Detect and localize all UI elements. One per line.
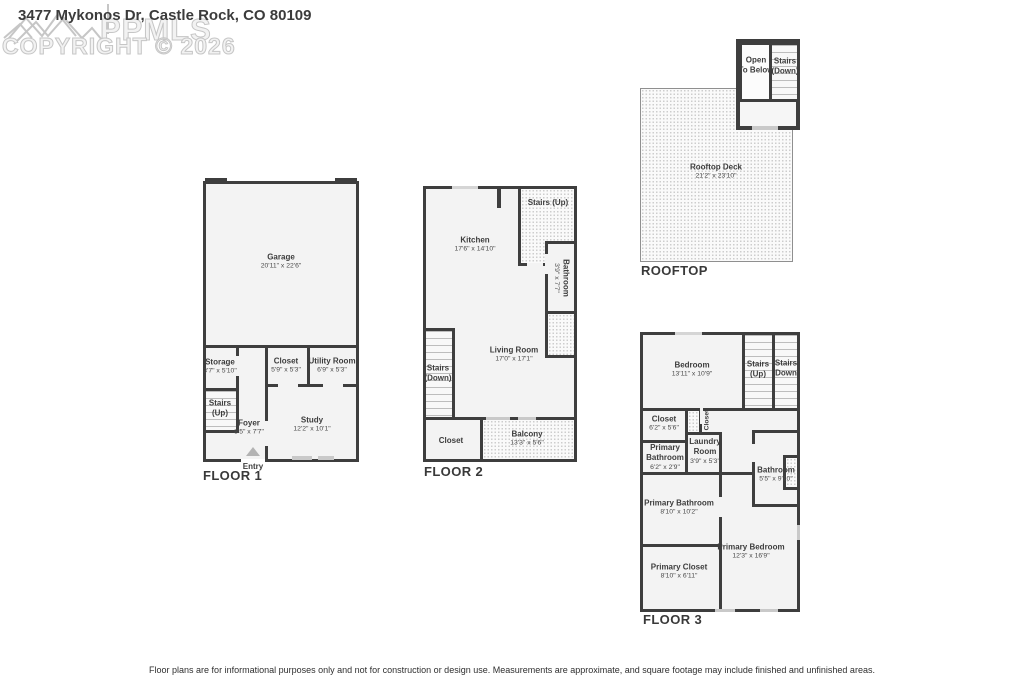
window bbox=[760, 609, 778, 612]
window bbox=[452, 186, 478, 189]
floor3-plan: Bedroom 13'11" x 10'9" Stairs (Up) Stair… bbox=[640, 332, 800, 612]
door-gap bbox=[545, 254, 548, 274]
window bbox=[797, 525, 800, 540]
floor3-title: FLOOR 3 bbox=[643, 612, 702, 627]
window bbox=[318, 456, 334, 460]
window bbox=[675, 332, 702, 335]
door-gap bbox=[719, 497, 722, 517]
entry-arrow-icon bbox=[246, 447, 260, 456]
foyer-label: Foyer 8'5" x 7'7" bbox=[234, 418, 264, 437]
door-gap bbox=[752, 444, 755, 462]
disclaimer-text: Floor plans are for informational purpos… bbox=[0, 665, 1024, 675]
floor2-bathroom-label: Bathroom 3'9" x 7'7" bbox=[551, 259, 570, 297]
door-gap bbox=[278, 384, 298, 387]
window bbox=[715, 609, 735, 612]
rooftop-title: ROOFTOP bbox=[641, 263, 708, 278]
wall-stub bbox=[335, 178, 357, 183]
floor2-closet-label: Closet bbox=[439, 436, 463, 446]
window bbox=[518, 417, 536, 420]
wall-stub bbox=[497, 186, 501, 208]
storage-label: Storage 3'7" x 5'10" bbox=[203, 357, 237, 376]
floor1-plan: Garage 20'11" x 22'6" Storage 3'7" x 5'1… bbox=[203, 181, 359, 462]
floor2-stairs-up-label: Stairs (Up) bbox=[528, 198, 568, 208]
primary-bathroom-small-label: Primary Bathroom 6'2" x 2'9" bbox=[642, 443, 688, 473]
rooftop-stairs-label: Stairs (Down) bbox=[771, 57, 798, 78]
floor3-stairs-down-label: Stairs (Down) bbox=[772, 359, 799, 380]
window bbox=[752, 126, 778, 130]
door-gap bbox=[265, 421, 268, 446]
living-room-label: Living Room 17'0" x 17'1" bbox=[490, 345, 538, 364]
window bbox=[292, 456, 312, 460]
door-gap bbox=[323, 384, 343, 387]
primary-bathroom-label: Primary Bathroom 8'10" x 10'2" bbox=[644, 498, 714, 517]
study-label: Study 12'2" x 10'1" bbox=[293, 415, 330, 434]
kitchen-label: Kitchen 17'6" x 14'10" bbox=[454, 235, 495, 254]
watermark-copyright: COPYRIGHT © 2026 bbox=[2, 33, 236, 60]
primary-closet-label: Primary Closet 8'10" x 6'11" bbox=[651, 562, 707, 581]
window bbox=[486, 417, 510, 420]
floor3-closet-label: Closet 6'2" x 5'6" bbox=[649, 414, 679, 433]
floor2-plan: Kitchen 17'6" x 14'10" Stairs (Up) Bathr… bbox=[423, 186, 577, 462]
door-gap bbox=[527, 263, 543, 266]
bedroom-label: Bedroom 13'11" x 10'9" bbox=[672, 360, 713, 379]
garage-label: Garage 20'11" x 22'6" bbox=[261, 252, 302, 271]
open-to-below-label: Open To Below bbox=[739, 56, 774, 77]
closet-label: Closet 5'9" x 5'3" bbox=[271, 356, 301, 375]
rooftop-plan: Open To Below Stairs (Down) Rooftop Deck… bbox=[640, 39, 800, 262]
floor-plan-page: { "title": "3477 Mykonos Dr, Castle Rock… bbox=[0, 0, 1024, 682]
floor1-title: FLOOR 1 bbox=[203, 468, 262, 483]
wall-stub bbox=[205, 178, 227, 183]
primary-bedroom-label: Primary Bedroom 12'3" x 16'9" bbox=[717, 542, 784, 561]
floor3-stairs-up-label: Stairs (Up) bbox=[747, 360, 769, 381]
floor3-bathroom-label: Bathroom 5'5" x 9'10" bbox=[757, 465, 795, 484]
rooftop-deck-label: Rooftop Deck 21'2" x 23'10" bbox=[690, 162, 742, 181]
door-gap bbox=[700, 408, 703, 424]
page-title: 3477 Mykonos Dr, Castle Rock, CO 80109 bbox=[18, 7, 311, 24]
floor2-stairs-down-label: Stairs (Down) bbox=[424, 364, 451, 385]
laundry-room-label: Laundry Room 3'9" x 5'3" bbox=[682, 437, 728, 467]
utility-room-label: Utility Room 6'9" x 5'3" bbox=[308, 356, 355, 375]
floor2-hatched-area bbox=[545, 311, 577, 358]
balcony-label: Balcony 13'3" x 5'6" bbox=[510, 429, 544, 448]
floor2-title: FLOOR 2 bbox=[424, 464, 483, 479]
floor1-stairs-label: Stairs (Up) bbox=[209, 399, 231, 420]
floor3-closet2-label: Closet bbox=[704, 410, 713, 431]
